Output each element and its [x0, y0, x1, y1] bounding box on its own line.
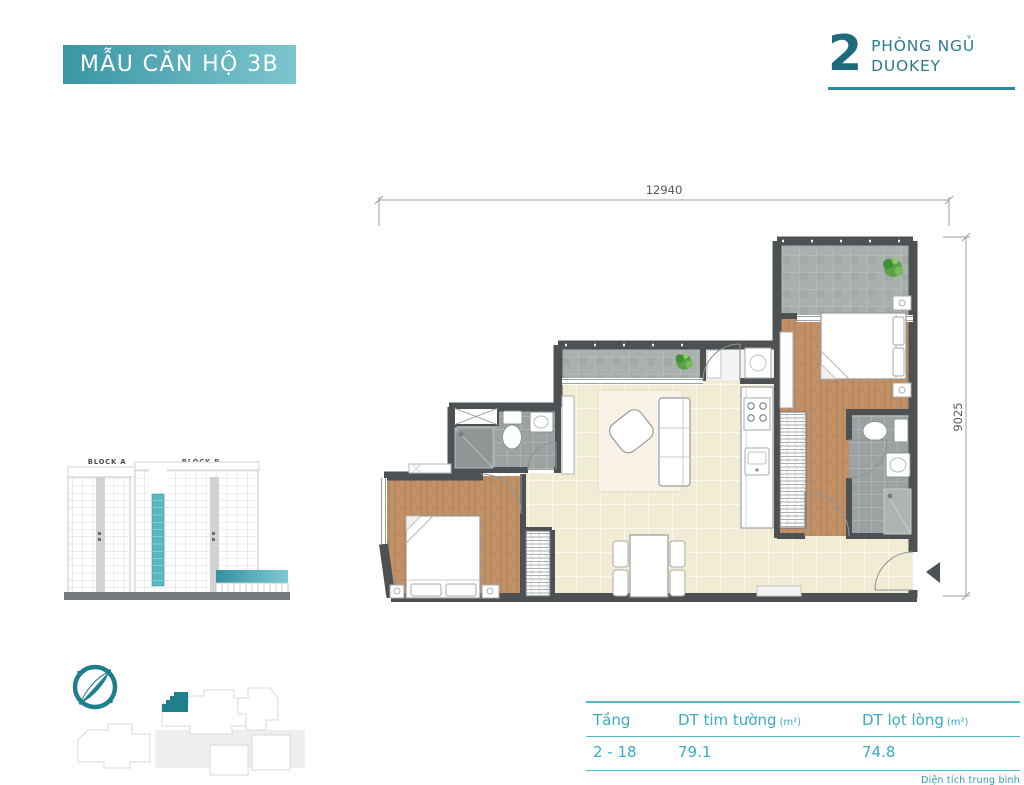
nightstand [390, 585, 404, 598]
podium-highlight [216, 570, 288, 583]
block-a-label: BLOCK A [88, 458, 127, 466]
dimension-height-label: 9025 [951, 402, 965, 431]
stove [744, 398, 770, 430]
ground-bar [64, 592, 290, 600]
page: MẪU CĂN HỘ 3B 2 PHÒNG NGỦ DUOKEY [0, 0, 1024, 785]
nightstand [893, 383, 911, 397]
table-footnote: Diện tích trung bình [586, 771, 1020, 785]
block-b-notch [149, 468, 167, 494]
ac-ledge [409, 464, 451, 473]
bedroom2-wardrobe [526, 531, 550, 596]
unit-summary: 2 PHÒNG NGỦ DUOKEY [828, 31, 975, 78]
tv-cabinet [562, 396, 574, 474]
block-a-roofline [68, 467, 146, 477]
col-header-net-area: DT lọt lòng(m²) [862, 711, 1020, 729]
building-elevation: BLOCK A BLOCK B [58, 450, 298, 605]
bedroom-label-line2: DUOKEY [871, 56, 975, 76]
nightstand [482, 585, 499, 598]
bedroom-label: PHÒNG NGỦ DUOKEY [871, 31, 975, 77]
nightstand [893, 296, 911, 310]
net-area-value: 74.8 [862, 743, 1020, 761]
site-highlighted-unit [162, 692, 188, 712]
dimension-width-label: 12940 [646, 183, 683, 197]
shoe-cabinet [757, 586, 801, 596]
area-table: Tầng DT tim tường(m²) DT lọt lòng(m²) 2 … [586, 701, 1020, 785]
entrance-arrow-icon [926, 562, 940, 583]
toilet [863, 422, 887, 441]
dining-chair [613, 570, 628, 596]
master-wardrobe [780, 412, 806, 528]
col-header-gross-area: DT tim tường(m²) [678, 711, 862, 729]
apartment-model-badge: MẪU CĂN HỘ 3B [63, 45, 296, 84]
col-header-floor: Tầng [586, 711, 678, 729]
bedroom-count: 2 [828, 31, 862, 78]
washer [745, 348, 771, 378]
bedroom-label-line1: PHÒNG NGỦ [871, 36, 975, 56]
floor-range-value: 2 - 18 [586, 743, 678, 761]
site-plan [58, 668, 310, 780]
floor-plan: 12940 9025 [372, 172, 980, 612]
table-data-row: 2 - 18 79.1 74.8 [586, 737, 1020, 770]
dining-table [630, 535, 668, 597]
table-header-row: Tầng DT tim tường(m²) DT lọt lòng(m²) [586, 703, 1020, 736]
sink [530, 412, 553, 432]
gross-area-value: 79.1 [678, 743, 862, 761]
dining-chair [613, 541, 628, 567]
header-divider [828, 87, 1015, 90]
master-desk [780, 332, 793, 408]
dining-chair [670, 570, 685, 596]
dining-chair [670, 541, 685, 567]
sofa [659, 398, 690, 486]
toilet [503, 425, 522, 449]
